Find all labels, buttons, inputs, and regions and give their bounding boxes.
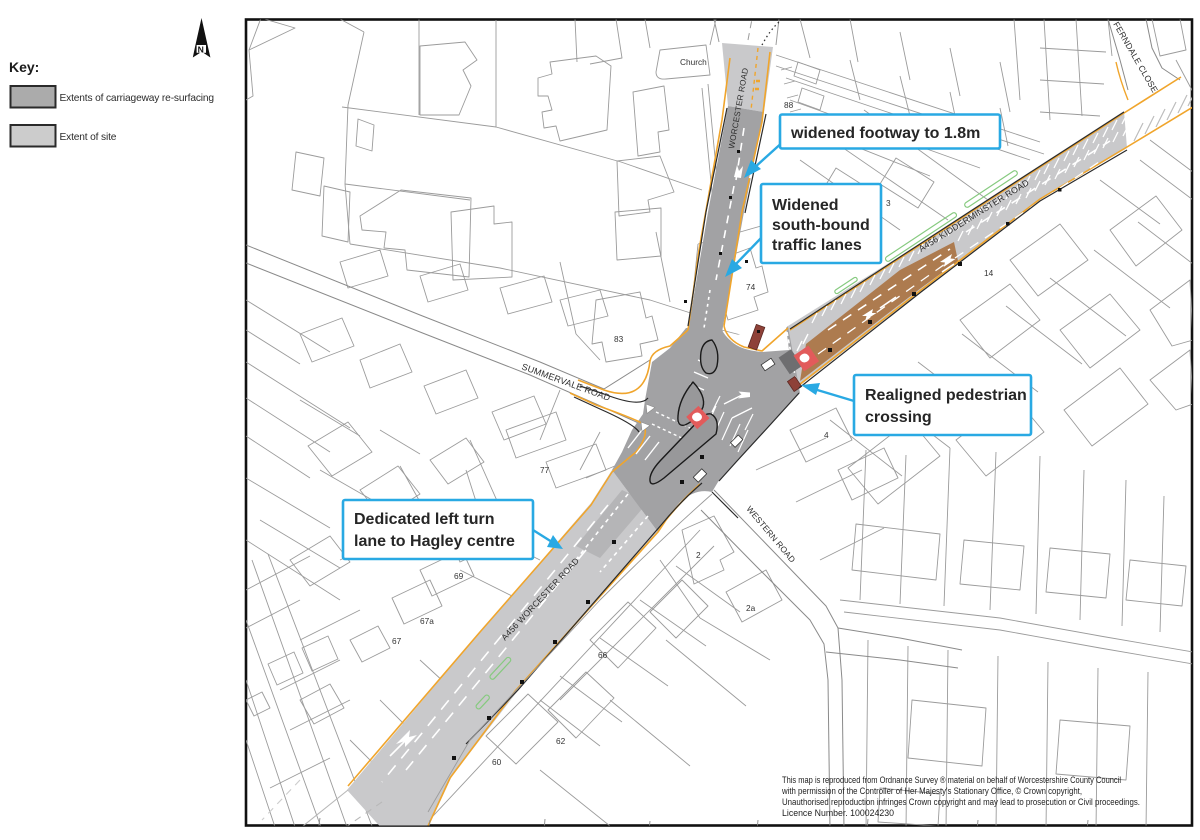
svg-text:Extent of site: Extent of site bbox=[60, 132, 117, 143]
svg-text:3: 3 bbox=[886, 198, 891, 208]
svg-text:Unauthorised reproduction infr: Unauthorised reproduction infringes Crow… bbox=[782, 797, 1140, 807]
svg-text:67: 67 bbox=[392, 636, 402, 646]
svg-text:69: 69 bbox=[454, 571, 464, 581]
svg-text:77: 77 bbox=[540, 465, 550, 475]
svg-text:66: 66 bbox=[598, 650, 608, 660]
svg-text:Realigned pedestrian: Realigned pedestrian bbox=[865, 387, 1027, 404]
svg-text:N: N bbox=[198, 44, 204, 54]
svg-text:Extents of carriageway re-surf: Extents of carriageway re-surfacing bbox=[60, 93, 215, 104]
svg-text:lane to Hagley centre: lane to Hagley centre bbox=[354, 533, 515, 550]
svg-text:Key:: Key: bbox=[9, 59, 39, 75]
svg-text:Widened: Widened bbox=[772, 197, 839, 214]
svg-text:60: 60 bbox=[492, 757, 502, 767]
svg-text:88: 88 bbox=[784, 100, 794, 110]
svg-text:83: 83 bbox=[614, 334, 624, 344]
svg-text:2a: 2a bbox=[746, 603, 756, 613]
svg-text:widened footway to 1.8m: widened footway to 1.8m bbox=[790, 125, 980, 142]
svg-text:Licence Number. 100024230: Licence Number. 100024230 bbox=[782, 808, 894, 818]
svg-text:74: 74 bbox=[746, 282, 756, 292]
svg-text:2: 2 bbox=[696, 550, 701, 560]
svg-text:Dedicated left turn: Dedicated left turn bbox=[354, 511, 494, 528]
svg-text:67a: 67a bbox=[420, 616, 434, 626]
svg-text:crossing: crossing bbox=[865, 409, 932, 426]
svg-text:south-bound: south-bound bbox=[772, 217, 870, 234]
svg-text:4: 4 bbox=[824, 430, 829, 440]
svg-text:Church: Church bbox=[680, 57, 707, 67]
svg-text:This map is reproduced from Or: This map is reproduced from Ordnance Sur… bbox=[782, 775, 1121, 785]
svg-text:traffic lanes: traffic lanes bbox=[772, 237, 862, 254]
svg-text:14: 14 bbox=[984, 268, 994, 278]
svg-text:with permission of the Control: with permission of the Controller of Her… bbox=[781, 786, 1082, 796]
svg-text:62: 62 bbox=[556, 736, 566, 746]
